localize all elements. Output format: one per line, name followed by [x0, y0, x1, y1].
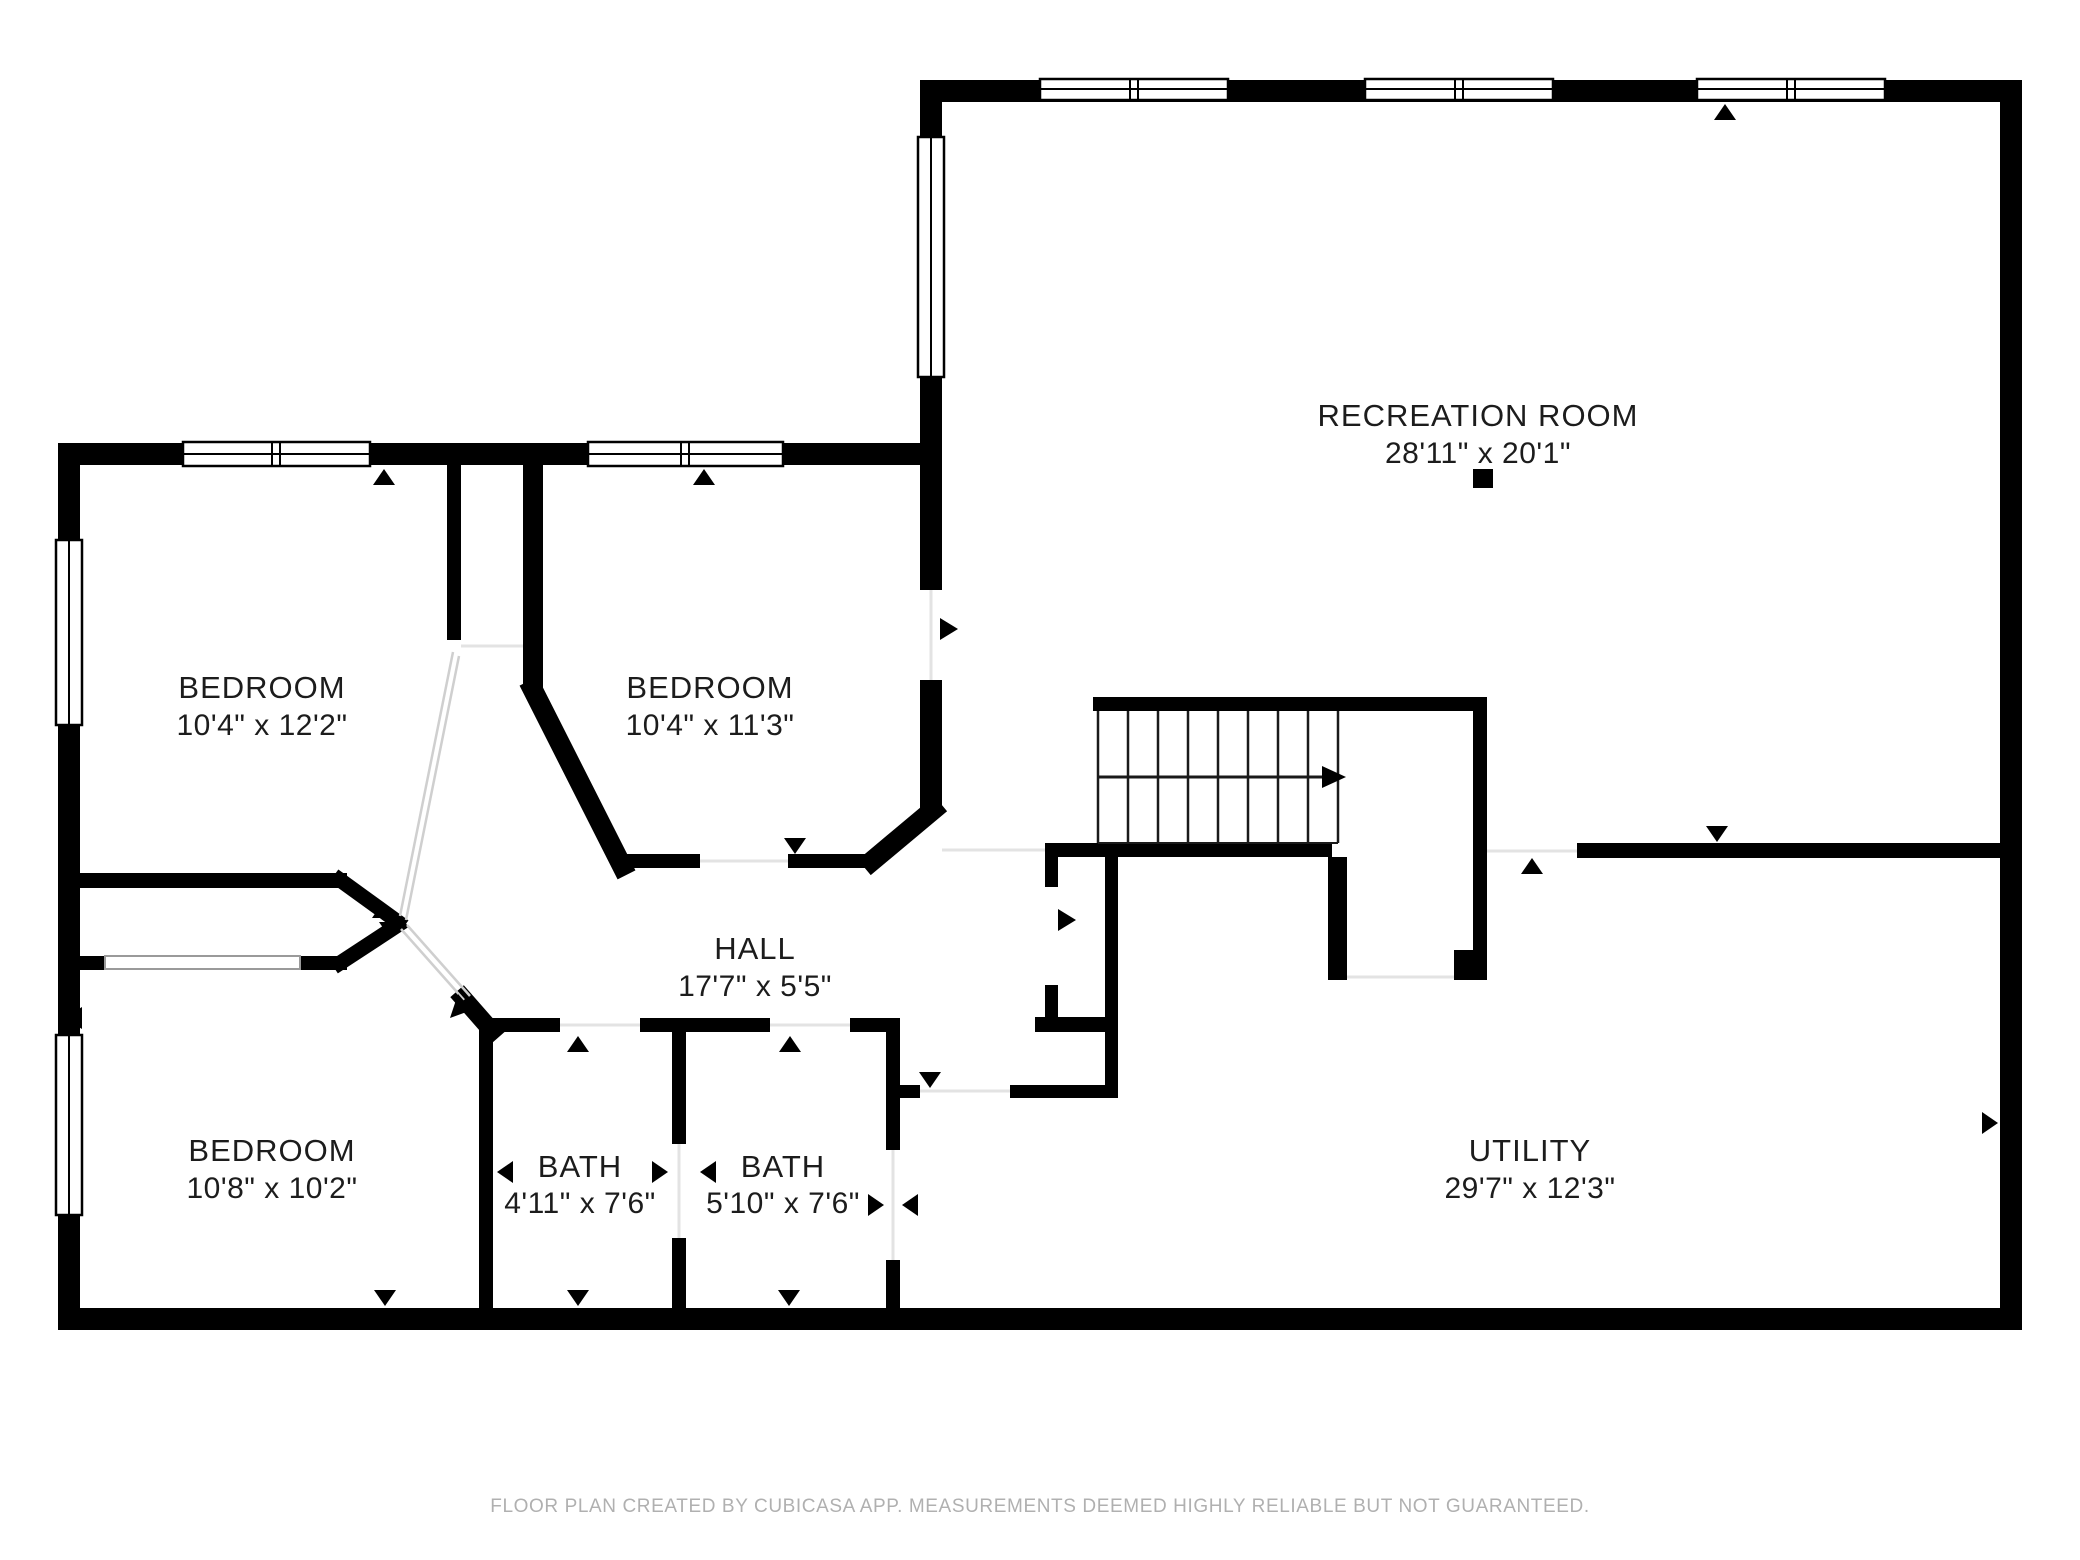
recreation-room-name: RECREATION ROOM [1318, 398, 1639, 433]
bedroom-top-left-name: BEDROOM [178, 670, 345, 705]
bath-left-name: BATH [538, 1149, 622, 1184]
door-swing-lines [400, 652, 470, 1000]
footer-disclaimer: FLOOR PLAN CREATED BY CUBICASA APP. MEAS… [490, 1496, 1590, 1517]
window-frame-lines [69, 79, 1885, 1215]
recreation-room-dimensions: 28'11" x 20'1" [1385, 437, 1571, 470]
bath-right-dimensions: 5'10" x 7'6" [706, 1187, 860, 1220]
floor-plan-canvas: RECREATION ROOM 28'11" x 20'1" BEDROOM 1… [0, 0, 2080, 1560]
windows [56, 79, 1885, 1215]
door-markers [64, 104, 1998, 1306]
bath-left-dimensions: 4'11" x 7'6" [504, 1187, 656, 1220]
hall-name: HALL [714, 931, 796, 966]
utility-dimensions: 29'7" x 12'3" [1444, 1172, 1615, 1205]
bedroom-top-center-name: BEDROOM [626, 670, 793, 705]
bedroom-bottom-left-dimensions: 10'8" x 10'2" [186, 1172, 357, 1205]
stairs [1098, 711, 1338, 843]
hall-dimensions: 17'7" x 5'5" [678, 970, 832, 1003]
bath-right-name: BATH [741, 1149, 825, 1184]
bedroom-bottom-left-name: BEDROOM [188, 1133, 355, 1168]
bedroom-top-left-dimensions: 10'4" x 12'2" [176, 709, 347, 742]
floor-plan-page: RECREATION ROOM 28'11" x 20'1" BEDROOM 1… [0, 0, 2080, 1560]
stairs-direction-arrow [1322, 766, 1346, 788]
bedroom-top-center-dimensions: 10'4" x 11'3" [626, 709, 795, 742]
closet-slider-door [105, 956, 300, 969]
utility-name: UTILITY [1469, 1133, 1591, 1168]
